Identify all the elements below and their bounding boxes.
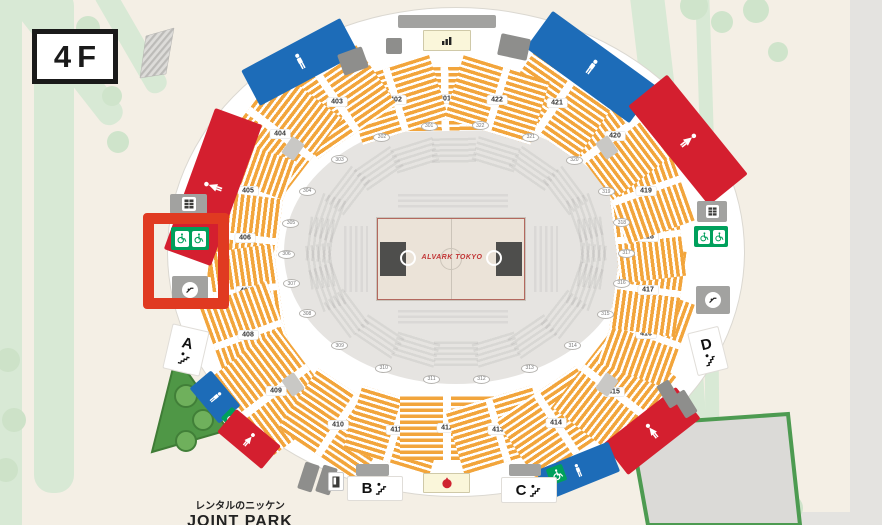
basketball-court: ALVARK TOKYO [377, 218, 525, 300]
joint-park-name: JOINT PARK [155, 513, 325, 525]
lower-section-badge: 321 [522, 133, 539, 142]
lower-section-badge: 312 [473, 375, 490, 384]
escalator-circle [705, 292, 721, 308]
female-restroom-icon [642, 420, 663, 442]
lower-section-badge: 305 [282, 219, 299, 228]
highlight-rectangle [143, 213, 229, 309]
lower-section-badge: 306 [278, 250, 295, 259]
seat-section-number: 419 [636, 187, 656, 196]
concession-stand-top [423, 30, 471, 51]
wheelchair-tile [698, 230, 710, 244]
lower-section-badge: 308 [299, 309, 316, 318]
male-restroom-icon [581, 56, 602, 79]
road-left-outer [0, 0, 22, 525]
seat-section-number: 417 [638, 286, 658, 295]
lower-section-badge: 317 [618, 249, 635, 258]
seat-section-number: 406 [235, 234, 255, 243]
floor-seating [534, 226, 558, 292]
structure-top-left-2 [386, 38, 402, 54]
stairs-icon [702, 351, 718, 367]
seat-section-number: 421 [547, 99, 567, 108]
vending-machine [328, 472, 344, 491]
lower-section-badge: 315 [597, 310, 614, 319]
gate-d-label: D [699, 336, 713, 353]
lockers-right [697, 201, 727, 222]
seat-section-number: 414 [546, 419, 566, 428]
seat-section-number: 422 [487, 96, 507, 105]
escalator-icon [707, 294, 719, 306]
female-restroom-icon [239, 429, 258, 449]
lower-section-badge: 313 [521, 364, 538, 373]
floor-level-badge: 4F [32, 29, 118, 84]
structure-above-gate-c [509, 464, 541, 476]
seat-section-number: 408 [238, 331, 258, 340]
lower-section-badge: 310 [375, 364, 392, 373]
male-restroom-icon [571, 462, 585, 480]
tree-icon [2, 408, 26, 432]
lockers-left [170, 194, 207, 214]
wheelchair-icon [699, 232, 709, 242]
stairs-icon [529, 484, 542, 497]
tree-icon [102, 86, 122, 106]
stairs-icon [176, 350, 192, 366]
gate-c-label: C [516, 483, 527, 498]
seat-section-number: 403 [327, 98, 347, 107]
court-center-logo: ALVARK TOKYO [412, 254, 492, 261]
seat-section-number: 410 [328, 421, 348, 430]
hatched-area [140, 28, 174, 78]
locker-tile [706, 205, 719, 218]
floor-seating [398, 310, 508, 325]
joint-park-sponsor: レンタルのニッケン [155, 497, 325, 512]
floor-seating [398, 194, 508, 209]
gate-c: C [501, 477, 557, 503]
tree-icon [176, 431, 196, 451]
male-restroom-icon [206, 388, 224, 405]
lower-section-badge: 316 [613, 279, 630, 288]
lower-section-badge: 301 [421, 122, 438, 131]
floor-seating [344, 226, 368, 292]
gate-a-label: A [181, 335, 195, 352]
escalator-right [696, 286, 730, 314]
lower-section-badge: 311 [423, 375, 440, 384]
tree-icon [743, 0, 769, 23]
seat-section-number: 404 [270, 130, 290, 139]
tree-icon [711, 11, 733, 33]
arena-floor-map-4f: ALVARK TOKYO 401402403404405406407408409… [0, 0, 882, 525]
lower-section-badge: 304 [299, 187, 316, 196]
accessible-seating-right [694, 226, 728, 247]
locker-icon [708, 207, 717, 216]
gate-b: B [347, 476, 403, 501]
lower-section-badge: 320 [566, 156, 583, 165]
concession-icon [441, 36, 453, 46]
food-stand-icon [441, 477, 453, 489]
sidewalk-right [850, 0, 882, 525]
wheelchair-icon [714, 232, 724, 242]
tree-icon [768, 42, 788, 62]
seat-section-number: 409 [266, 387, 286, 396]
structure-above-gate-b [356, 464, 389, 476]
gate-b-label: B [362, 481, 373, 496]
female-restroom-icon [676, 129, 700, 152]
locker-icon [184, 199, 194, 209]
locker-tile [182, 197, 196, 211]
male-restroom-icon [290, 51, 309, 74]
tree-icon [107, 131, 129, 153]
structure-top-band [398, 15, 496, 28]
vending-icon [332, 476, 340, 488]
wheelchair-tile [713, 230, 725, 244]
stairs-icon [375, 482, 388, 495]
joint-park-label: レンタルのニッケン JOINT PARK [155, 497, 325, 525]
food-stand-bottom [423, 473, 470, 493]
